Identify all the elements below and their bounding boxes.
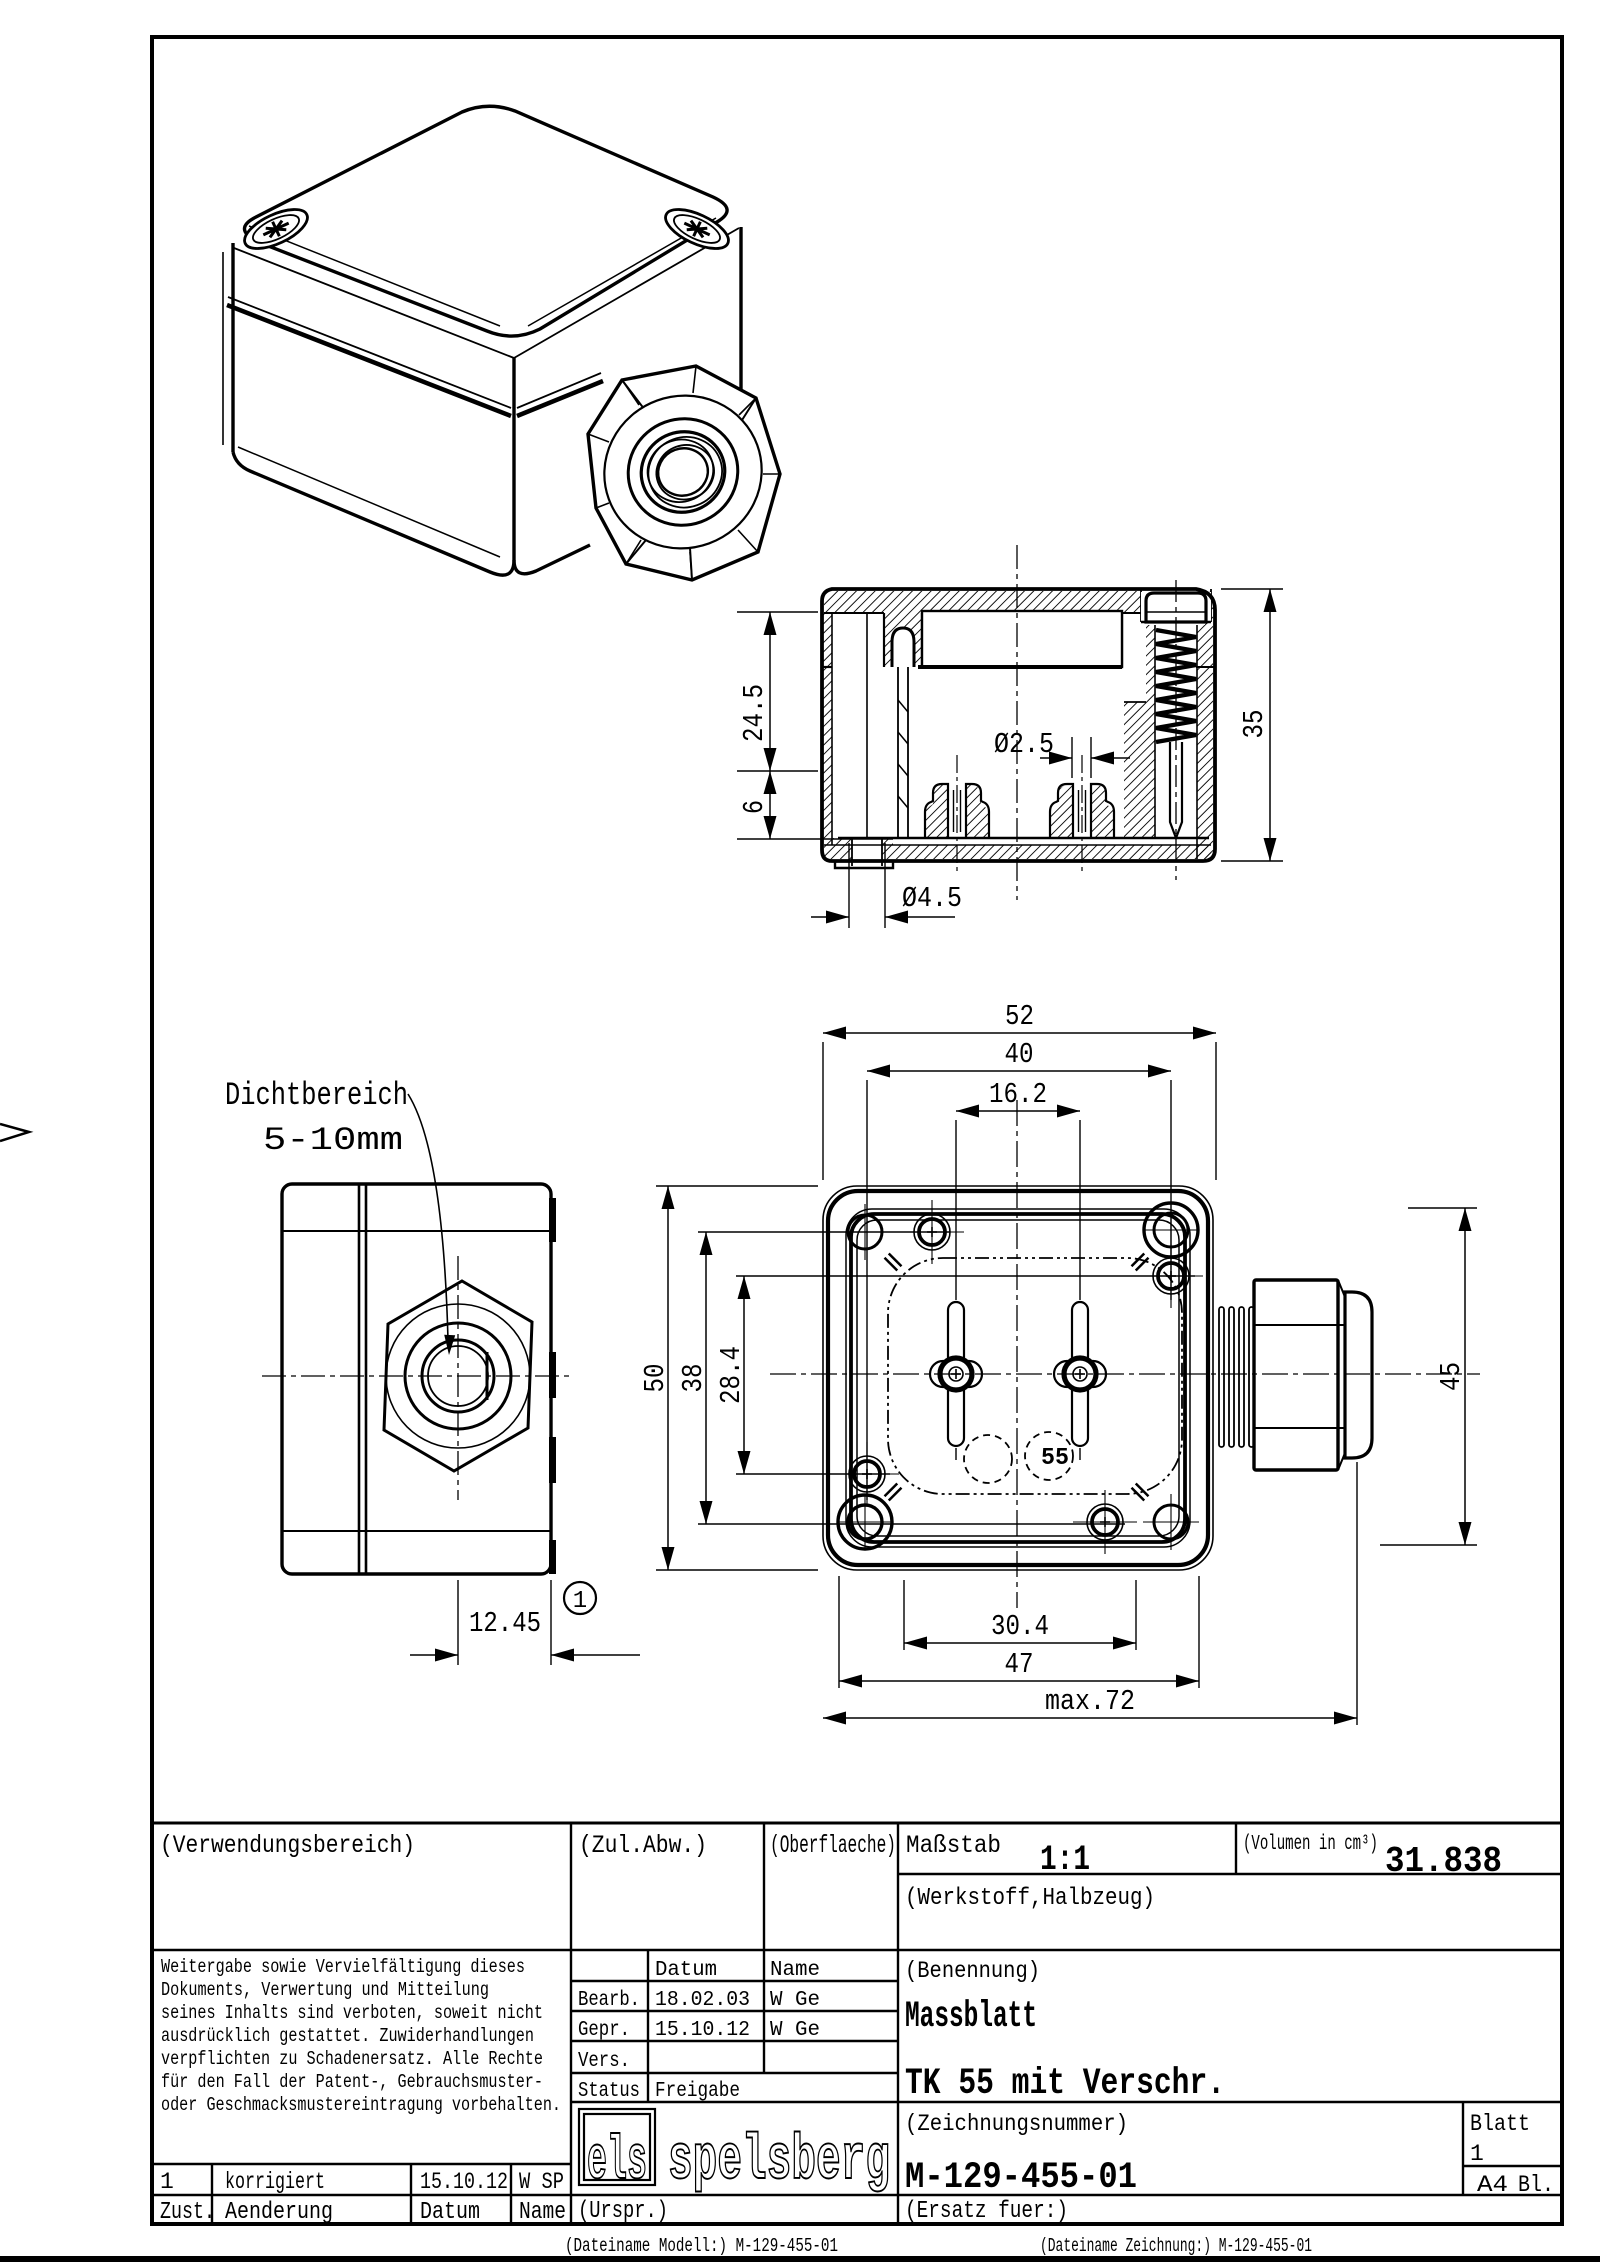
svg-text:38: 38 [677, 1364, 710, 1393]
svg-text:verpflichten zu Schadenersatz.: verpflichten zu Schadenersatz. Alle Rech… [161, 2048, 543, 2070]
svg-text:A4: A4 [1477, 2172, 1508, 2198]
svg-text:30.4: 30.4 [991, 1610, 1049, 1643]
svg-text:ausdrücklich gestattet. Zuwide: ausdrücklich gestattet. Zuwiderhandlunge… [161, 2025, 534, 2047]
svg-text:TK 55 mit Verschr.: TK 55 mit Verschr. [905, 2063, 1225, 2105]
svg-text:52: 52 [1005, 1000, 1034, 1033]
svg-text:W SP: W SP [519, 2169, 564, 2195]
svg-text:oder Geschmacksmustereintragun: oder Geschmacksmustereintragung vorbehal… [161, 2094, 561, 2116]
svg-text:W Ge: W Ge [770, 2019, 820, 2042]
svg-text:1: 1 [1470, 2141, 1484, 2167]
svg-text:Datum: Datum [655, 1959, 717, 1982]
svg-text:Aenderung: Aenderung [225, 2199, 333, 2226]
svg-text:(Oberflaeche): (Oberflaeche) [770, 1831, 896, 1860]
svg-text:6: 6 [738, 800, 771, 814]
svg-text:1: 1 [160, 2169, 174, 2195]
svg-text:Name: Name [770, 1959, 820, 1982]
svg-text:korrigiert: korrigiert [225, 2169, 325, 2195]
svg-text:16.2: 16.2 [989, 1078, 1047, 1111]
svg-text:1:1: 1:1 [1040, 1840, 1090, 1880]
svg-text:50: 50 [639, 1364, 672, 1393]
svg-text:Status: Status [578, 2080, 640, 2103]
svg-text:max.72: max.72 [1045, 1685, 1135, 1718]
svg-text:W Ge: W Ge [770, 1989, 820, 2012]
svg-text:28.4: 28.4 [715, 1346, 748, 1404]
svg-text:15.10.12: 15.10.12 [655, 2019, 750, 2042]
svg-text:Weitergabe sowie Vervielfältig: Weitergabe sowie Vervielfältigung dieses [161, 1956, 525, 1978]
svg-text:Zust.: Zust. [160, 2199, 215, 2226]
svg-text:12.45: 12.45 [469, 1607, 541, 1640]
svg-text:35: 35 [1238, 710, 1271, 739]
svg-text:(Volumen in cm³): (Volumen in cm³) [1243, 1833, 1378, 1856]
svg-text:24.5: 24.5 [738, 684, 771, 742]
svg-text:1: 1 [573, 1588, 587, 1615]
svg-text:Bl.: Bl. [1518, 2172, 1554, 2198]
svg-text:Dichtbereich: Dichtbereich [225, 1077, 408, 1114]
svg-text:spelsberg: spelsberg [668, 2126, 890, 2198]
svg-text:Bearb.: Bearb. [578, 1989, 640, 2012]
svg-text:(Dateiname Zeichnung:) M-129-4: (Dateiname Zeichnung:) M-129-455-01 [1040, 2235, 1312, 2257]
svg-text:(Dateiname Modell:) M-129-455-: (Dateiname Modell:) M-129-455-01 [565, 2235, 838, 2257]
svg-text:Ø2.5: Ø2.5 [994, 728, 1054, 761]
svg-text:Ø4.5: Ø4.5 [902, 882, 962, 915]
svg-text:Massblatt: Massblatt [905, 1996, 1037, 2038]
svg-text:18.02.03: 18.02.03 [655, 1989, 750, 2012]
svg-text:55: 55 [1041, 1445, 1069, 1472]
svg-text:Dokuments, Verwertung und Mitt: Dokuments, Verwertung und Mitteilung [161, 1979, 489, 2001]
svg-text:31.838: 31.838 [1385, 1841, 1502, 1882]
svg-text:Gepr.: Gepr. [578, 2019, 630, 2042]
svg-text:seines Inhalts sind verboten,: seines Inhalts sind verboten, soweit nic… [161, 2002, 543, 2024]
svg-text:5-10mm: 5-10mm [263, 1122, 403, 1159]
svg-text:45: 45 [1435, 1362, 1468, 1391]
svg-text:Vers.: Vers. [578, 2050, 630, 2073]
svg-text:für den Fall der Patent-, Gebr: für den Fall der Patent-, Gebrauchsmuste… [161, 2071, 543, 2093]
svg-text:(Verwendungsbereich): (Verwendungsbereich) [160, 1831, 415, 1860]
svg-text:els: els [587, 2126, 647, 2197]
svg-text:Freigabe: Freigabe [655, 2080, 740, 2103]
svg-text:15.10.12: 15.10.12 [420, 2169, 508, 2195]
svg-text:47: 47 [1005, 1648, 1034, 1681]
svg-text:Name: Name [519, 2199, 566, 2226]
svg-text:(Benennung): (Benennung) [905, 1958, 1040, 1984]
svg-text:(Zeichnungsnummer): (Zeichnungsnummer) [905, 2111, 1128, 2137]
svg-text:(Werkstoff,Halbzeug): (Werkstoff,Halbzeug) [905, 1885, 1155, 1912]
svg-text:Datum: Datum [420, 2199, 480, 2226]
svg-text:(Zul.Abw.): (Zul.Abw.) [579, 1831, 707, 1860]
svg-text:M-129-455-01: M-129-455-01 [905, 2157, 1137, 2199]
svg-text:40: 40 [1005, 1038, 1034, 1071]
svg-text:(Urspr.): (Urspr.) [578, 2198, 668, 2225]
svg-text:(Ersatz fuer:): (Ersatz fuer:) [905, 2198, 1068, 2225]
svg-text:Blatt: Blatt [1470, 2111, 1530, 2137]
svg-text:Maßstab: Maßstab [906, 1831, 1001, 1860]
